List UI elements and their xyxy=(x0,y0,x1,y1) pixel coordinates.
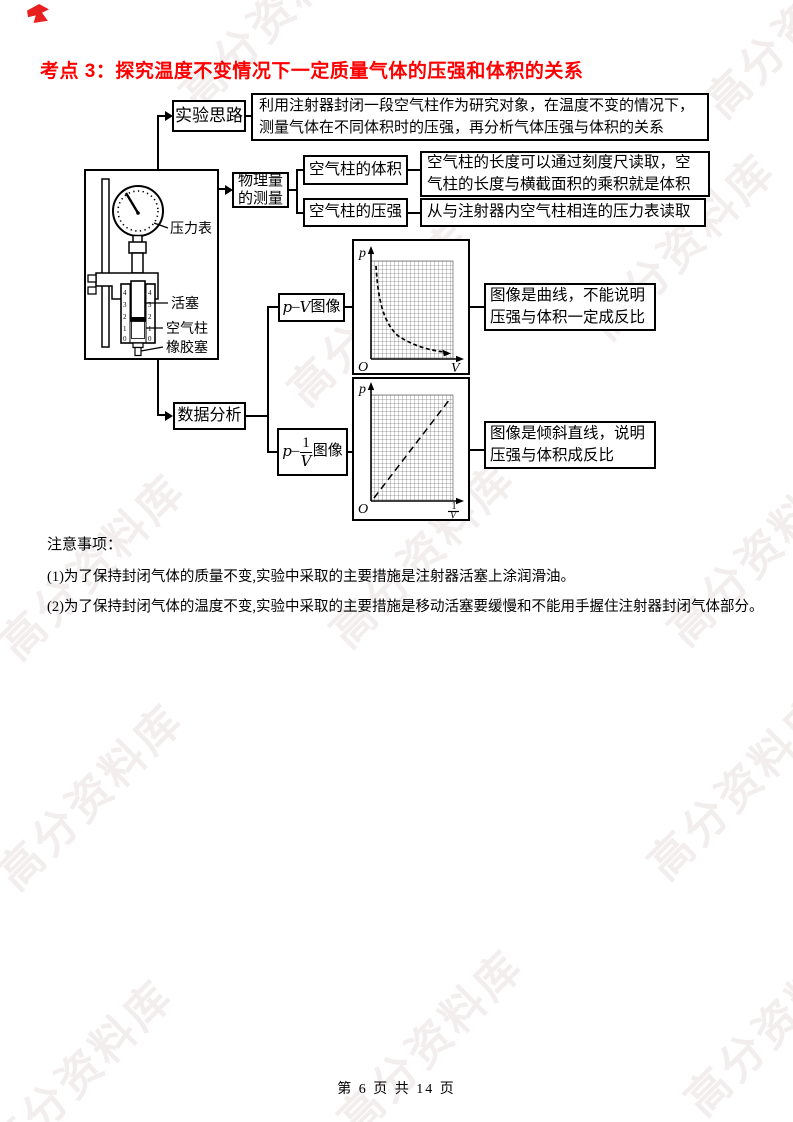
scale-number: 2 xyxy=(148,313,152,321)
connector-tube xyxy=(132,253,143,273)
connector-line xyxy=(267,306,278,308)
y-axis-label: p xyxy=(358,246,366,261)
apparatus-illustration: 4 3 2 1 0 4 3 2 1 0 xyxy=(86,171,217,358)
scale-number: 0 xyxy=(123,335,127,343)
connector-line xyxy=(157,115,159,169)
y-axis-arrow xyxy=(368,246,374,254)
p-symbol: p xyxy=(282,441,292,463)
connector-line xyxy=(296,169,298,214)
arrowhead xyxy=(165,111,173,121)
apparatus-box: 4 3 2 1 0 4 3 2 1 0 xyxy=(84,169,219,360)
pressure-method-box: 从与注射器内空气柱相连的压力表读取 xyxy=(420,198,706,227)
page-title: 考点 3：探究温度不变情况下一定质量气体的压强和体积的关系 xyxy=(40,56,583,83)
pv-graph-word: 图像 xyxy=(310,297,340,319)
pv-graph: p O V xyxy=(354,241,468,373)
data-analysis-box: 数据分析 xyxy=(173,402,246,430)
pv-graph-box: p O V xyxy=(352,239,470,375)
scale-number: 4 xyxy=(123,289,127,297)
connector-line xyxy=(157,360,159,416)
notes-heading: 注意事项： xyxy=(47,533,122,554)
red-corner-mark xyxy=(27,4,49,23)
pv-graph-label-box: p–V图像 xyxy=(278,293,345,322)
scale-number: 0 xyxy=(148,335,152,343)
volume-method-box: 空气柱的长度可以通过刻度尺读取，空气柱的长度与横截面积的乘积就是体积 xyxy=(420,151,710,197)
origin-label: O xyxy=(358,360,368,373)
air-column-pressure-box: 空气柱的压强 xyxy=(303,198,408,227)
fraction-denominator: V xyxy=(301,453,312,469)
connector-line xyxy=(267,451,277,453)
p-inverse-v-graph-box: p O 1 V xyxy=(352,377,470,521)
connector-line xyxy=(345,306,352,308)
rubber-stopper xyxy=(135,348,141,356)
gauge-collar xyxy=(129,242,146,253)
arrowhead xyxy=(165,411,173,421)
connector-line xyxy=(296,169,303,171)
fraction-numerator: 1 xyxy=(300,436,312,453)
piston-label: 活塞 xyxy=(171,295,199,312)
scale-number: 1 xyxy=(148,325,152,333)
stopper-label: 橡胶塞 xyxy=(166,339,208,356)
stand-rod xyxy=(102,179,109,347)
scale-number: 3 xyxy=(148,301,152,309)
page-number: 第 6 页 共 14 页 xyxy=(0,1078,793,1098)
p-inverse-v-graph: p O 1 V xyxy=(354,379,468,519)
pv-conclusion-box: 图像是曲线，不能说明压强与体积一定成反比 xyxy=(484,283,656,331)
p-inverse-v-graph-word: 图像 xyxy=(313,441,343,463)
scale-number: 2 xyxy=(123,313,127,321)
measured-quantities-box: 物理量的测量 xyxy=(232,172,289,208)
x-axis-label: V xyxy=(451,361,461,373)
one-over-v-fraction: 1V xyxy=(300,436,312,469)
connector-line xyxy=(408,212,420,214)
p-inverse-v-conclusion-box: 图像是倾斜直线，说明压强与体积成反比 xyxy=(484,421,656,469)
connector-line xyxy=(470,449,484,451)
connector-line xyxy=(296,212,303,214)
x-axis-arrow xyxy=(456,498,464,504)
air-column-label: 空气柱 xyxy=(166,321,208,337)
document-page: 高分资料库 高分资料库 高分资料库 高分资料库 高分资料库 高分资料库 高分资料… xyxy=(0,0,793,1122)
scale-number: 1 xyxy=(123,325,127,333)
note-item-1: (1)为了保持封闭气体的质量不变,实验中采取的主要措施是注射器活塞上涂润滑油。 xyxy=(47,565,575,586)
connector-line xyxy=(246,415,269,417)
dash: – xyxy=(292,297,300,319)
p-symbol: p xyxy=(283,297,293,319)
air-column-volume-box: 空气柱的体积 xyxy=(303,155,408,185)
scale-number: 3 xyxy=(123,301,127,309)
connector-line xyxy=(408,169,420,171)
arrowhead xyxy=(225,185,233,195)
leader-line xyxy=(141,347,163,351)
connector-line xyxy=(470,306,484,308)
p-inverse-v-graph-label-box: p–1V图像 xyxy=(277,428,348,476)
experiment-idea-box: 实验思路 xyxy=(172,100,246,132)
v-symbol: V xyxy=(300,297,311,319)
origin-label: O xyxy=(358,502,368,517)
clamp-knob xyxy=(88,287,96,294)
note-item-2: (2)为了保持封闭气体的温度不变,实验中采取的主要措施是移动活塞要缓慢和不能用手… xyxy=(47,595,764,616)
y-axis-arrow xyxy=(368,382,374,390)
nozzle xyxy=(133,343,143,348)
connector-line xyxy=(246,115,251,117)
connector-line xyxy=(348,451,352,453)
gauge-label: 压力表 xyxy=(170,221,212,237)
clamp-knob xyxy=(88,275,96,282)
piston-seal xyxy=(131,317,145,321)
grid-paper xyxy=(371,261,453,359)
air-column xyxy=(132,322,145,339)
gauge-pivot xyxy=(136,211,140,215)
y-axis-label: p xyxy=(358,382,366,397)
dash: – xyxy=(292,441,300,463)
connector-line xyxy=(267,306,269,453)
piston xyxy=(131,281,145,321)
experiment-idea-text-box: 利用注射器封闭一段空气柱作为研究对象，在温度不变的情况下，测量气体在不同体积时的… xyxy=(251,93,709,141)
scale-number: 4 xyxy=(148,289,152,297)
